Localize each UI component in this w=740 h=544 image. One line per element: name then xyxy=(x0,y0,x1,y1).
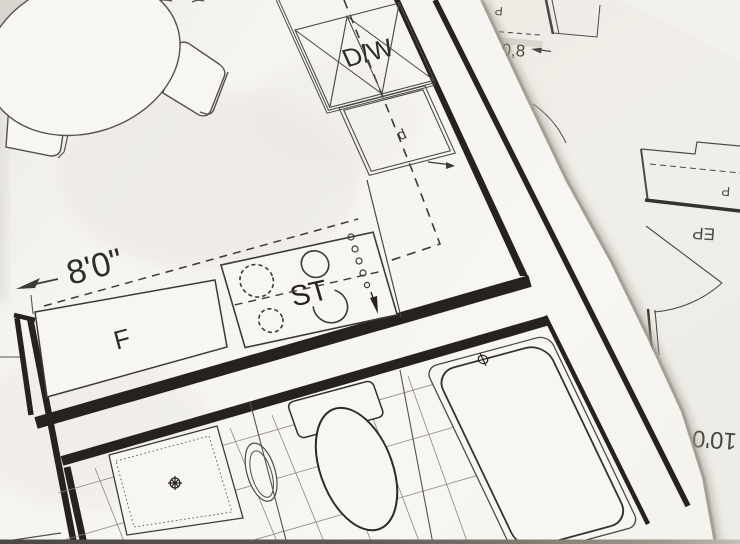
svg-text:P: P xyxy=(721,184,731,200)
svg-text:P: P xyxy=(494,4,503,19)
svg-text:EP: EP xyxy=(692,223,716,244)
